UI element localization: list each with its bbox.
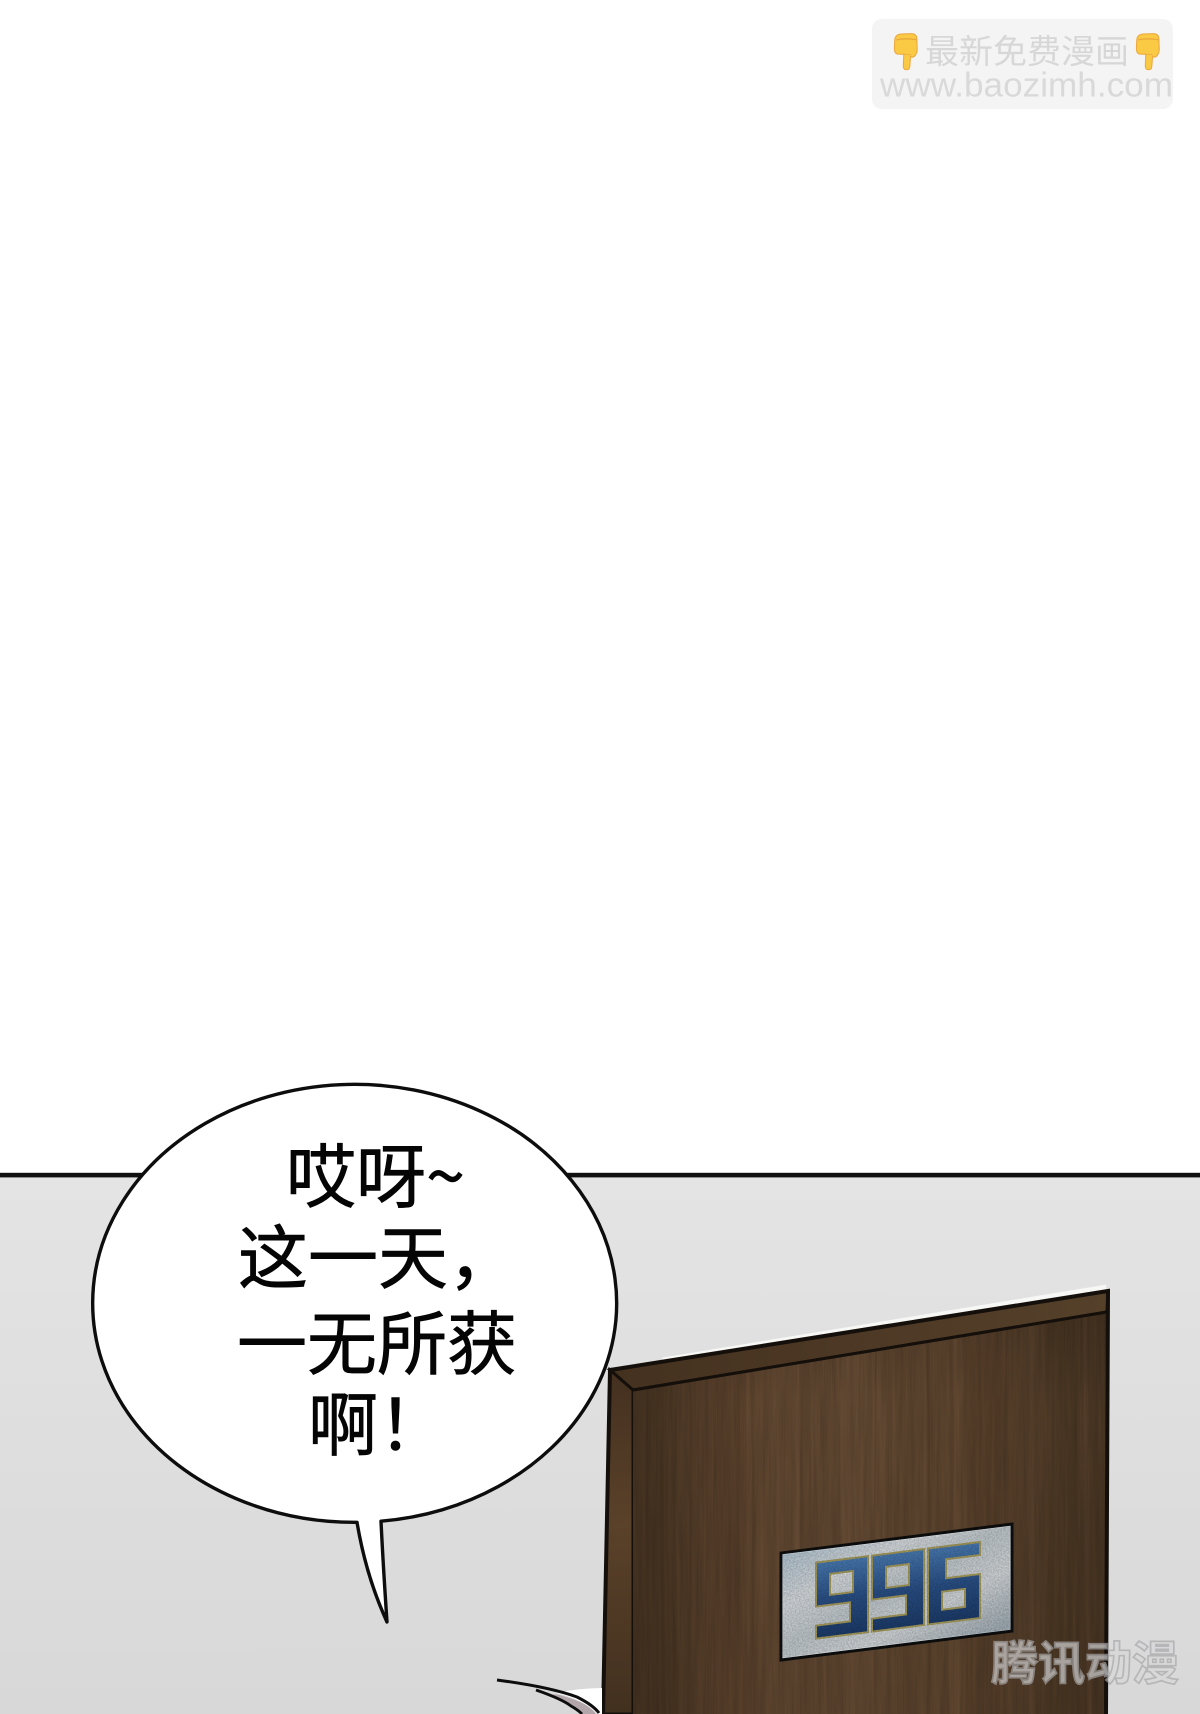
svg-text:www.baozimh.com: www.baozimh.com — [879, 67, 1173, 105]
